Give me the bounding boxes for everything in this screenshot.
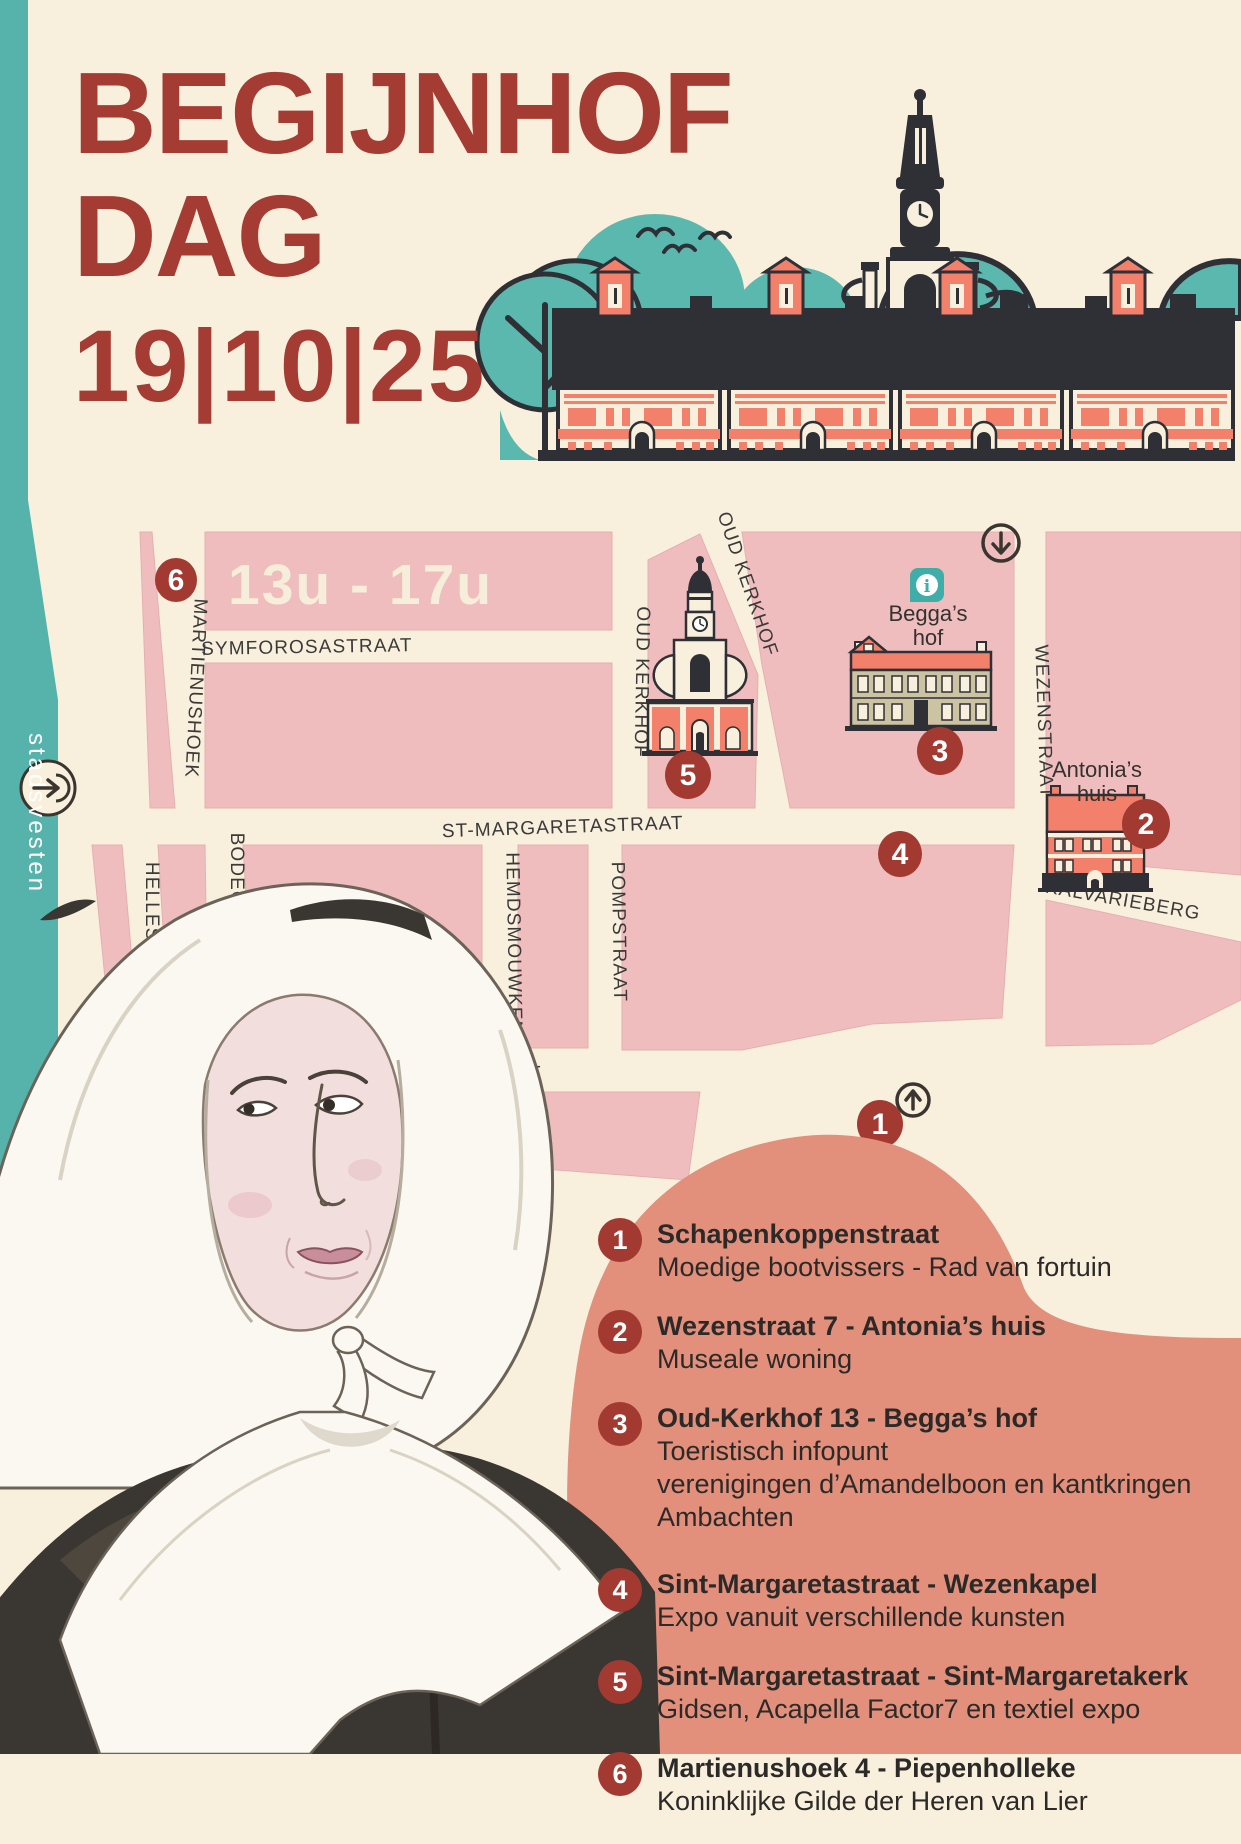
legend-desc-2: Museale woning — [657, 1343, 1046, 1376]
poi-label-antonias-huis: Antonia’s huis — [1052, 758, 1142, 806]
legend-badge-6: 6 — [598, 1752, 642, 1796]
map-marker-2: 2 — [1122, 799, 1170, 849]
legend-title-3: Oud-Kerkhof 13 - Begga’s hof — [657, 1402, 1191, 1435]
time-range: 13u - 17u — [228, 552, 493, 618]
street-label-symforosastraat: SYMFOROSASTRAAT — [201, 635, 413, 660]
legend-desc-3a: Toeristisch infopunt — [657, 1435, 1191, 1468]
legend-item-2: 2 Wezenstraat 7 - Antonia’s huis Museale… — [598, 1310, 1238, 1376]
legend-badge-2: 2 — [598, 1310, 642, 1354]
legend-title-1: Schapenkoppenstraat — [657, 1218, 1112, 1251]
svg-text:4: 4 — [892, 838, 909, 871]
legend-desc-4: Expo vanuit verschillende kunsten — [657, 1601, 1098, 1634]
info-glyph: i — [924, 577, 931, 597]
legend-desc-1: Moedige bootvissers - Rad van fortuin — [657, 1251, 1112, 1284]
stadsvesten-label: stadsvesten — [22, 733, 50, 894]
entrance-arrow-up-icon — [897, 1084, 929, 1116]
legend-desc-3b: verenigingen d’Amandelboon en kantkringe… — [657, 1468, 1191, 1501]
title-line-2: DAG — [73, 175, 732, 298]
svg-text:2: 2 — [1138, 808, 1155, 841]
beggas-hof-line1: Begga’s — [888, 602, 967, 626]
legend-badge-5: 5 — [598, 1660, 642, 1704]
map-block — [622, 845, 1014, 1050]
antonias-huis-line1: Antonia’s — [1052, 758, 1142, 782]
title-line-1: BEGIJNHOF — [73, 52, 732, 175]
svg-text:1: 1 — [872, 1108, 889, 1141]
svg-text:5: 5 — [680, 759, 697, 792]
event-date: 19|10|25 — [73, 312, 732, 420]
legend-title-4: Sint-Margaretastraat - Wezenkapel — [657, 1568, 1098, 1601]
legend-item-5: 5 Sint-Margaretastraat - Sint-Margaretak… — [598, 1660, 1238, 1726]
legend-desc-5: Gidsen, Acapella Factor7 en textiel expo — [657, 1693, 1188, 1726]
legend-badge-4: 4 — [598, 1568, 642, 1612]
legend-title-2: Wezenstraat 7 - Antonia’s huis — [657, 1310, 1046, 1343]
map-marker-5: 5 — [665, 751, 711, 799]
map-block — [1046, 900, 1241, 1046]
legend-item-6: 6 Martienushoek 4 - Piepenholleke Konink… — [598, 1752, 1238, 1818]
map-block — [205, 663, 612, 808]
svg-text:6: 6 — [168, 564, 185, 597]
legend-desc-3c: Ambachten — [657, 1501, 1191, 1534]
legend-title-6: Martienushoek 4 - Piepenholleke — [657, 1752, 1088, 1785]
info-icon: i — [910, 568, 944, 602]
beggas-hof-line2: hof — [888, 626, 967, 650]
street-label-st-margaretastraat: ST-MARGARETASTRAAT — [442, 813, 684, 842]
legend-badge-1: 1 — [598, 1218, 642, 1262]
svg-text:3: 3 — [932, 735, 949, 768]
legend-title-5: Sint-Margaretastraat - Sint-Margaretaker… — [657, 1660, 1188, 1693]
legend-item-4: 4 Sint-Margaretastraat - Wezenkapel Expo… — [598, 1568, 1238, 1634]
map-marker-3: 3 — [917, 727, 963, 775]
poster-title: BEGIJNHOF DAG 19|10|25 — [73, 52, 732, 420]
map-marker-6: 6 — [155, 558, 197, 602]
legend-item-1: 1 Schapenkoppenstraat Moedige bootvisser… — [598, 1218, 1238, 1284]
legend-badge-3: 3 — [598, 1402, 642, 1446]
poi-label-beggas-hof: Begga’s hof — [888, 602, 967, 650]
map-block — [518, 845, 588, 1048]
street-label-pompstraat: POMPSTRAAT — [607, 861, 630, 1002]
beggas-hof-building-icon — [845, 637, 997, 731]
map-marker-4: 4 — [878, 831, 922, 877]
antonias-huis-line2: huis — [1052, 782, 1142, 806]
legend-item-3: 3 Oud-Kerkhof 13 - Begga’s hof Toeristis… — [598, 1402, 1238, 1534]
legend-desc-6: Koninklijke Gilde der Heren van Lier — [657, 1785, 1088, 1818]
legend: 1 Schapenkoppenstraat Moedige bootvisser… — [598, 1218, 1238, 1844]
